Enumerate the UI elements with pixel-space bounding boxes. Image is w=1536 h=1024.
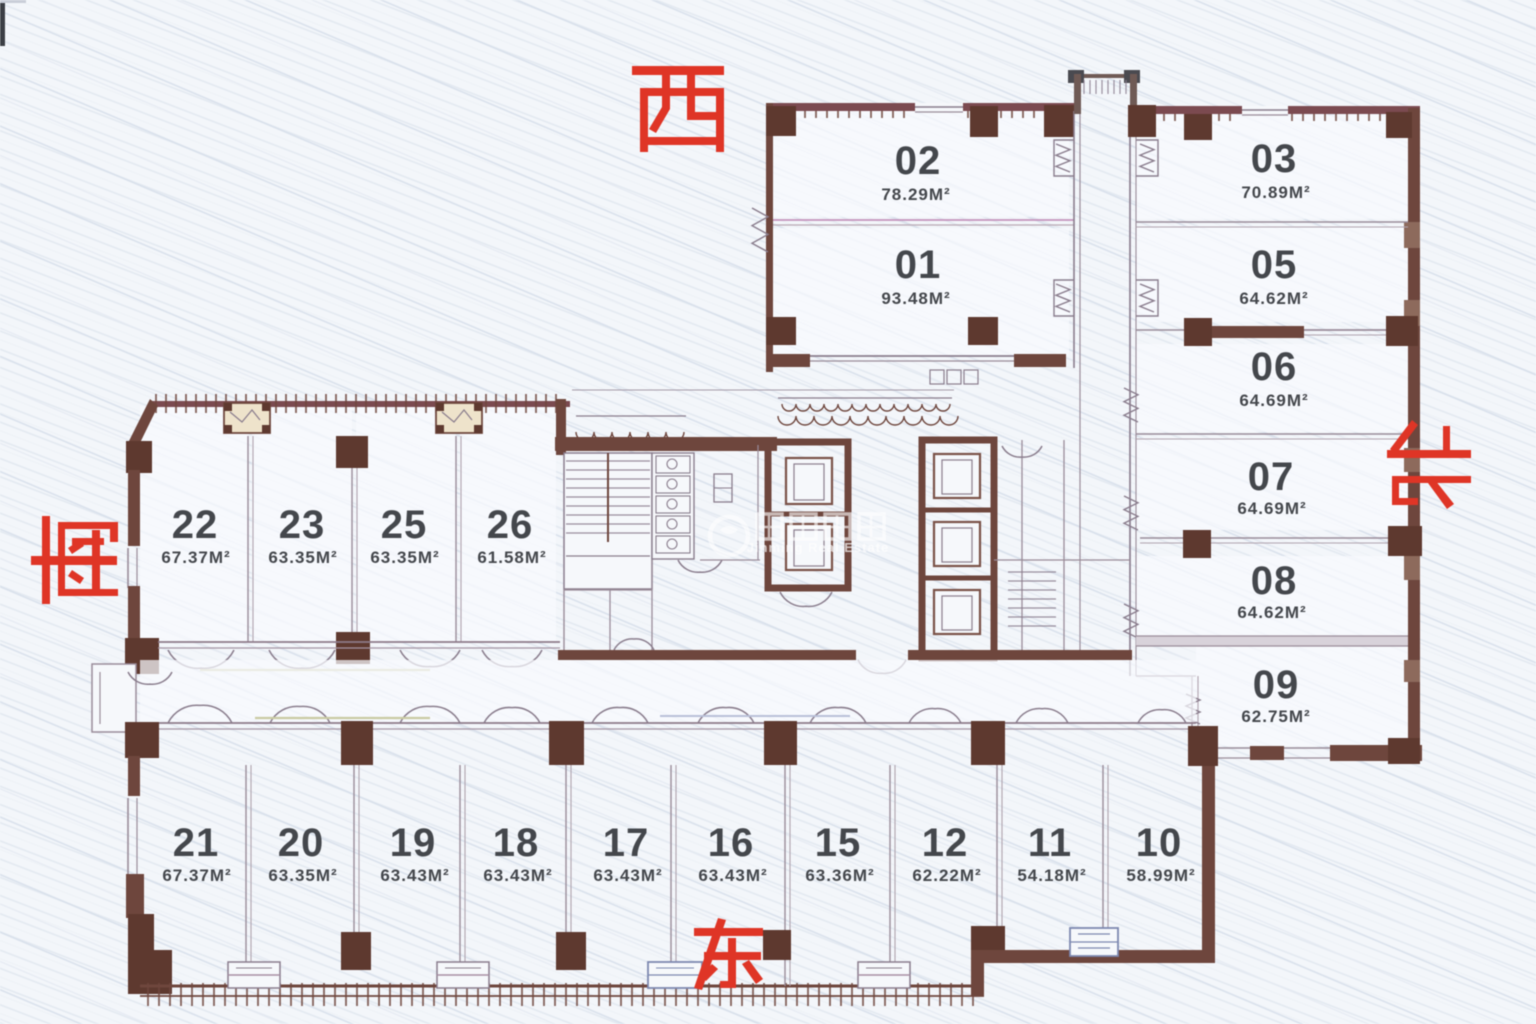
svg-text:93.48M²: 93.48M² <box>881 289 950 308</box>
svg-text:06: 06 <box>1251 345 1298 389</box>
svg-text:11: 11 <box>1028 821 1072 865</box>
svg-text:21: 21 <box>173 821 220 865</box>
svg-text:62.75M²: 62.75M² <box>1241 707 1310 726</box>
svg-text:64.69M²: 64.69M² <box>1239 391 1308 410</box>
svg-text:63.36M²: 63.36M² <box>805 866 874 885</box>
svg-text:67.37M²: 67.37M² <box>162 866 231 885</box>
svg-text:63.35M²: 63.35M² <box>268 866 337 885</box>
svg-text:78.29M²: 78.29M² <box>881 185 950 204</box>
svg-text:20: 20 <box>278 821 325 865</box>
svg-text:18: 18 <box>493 821 540 865</box>
svg-text:67.37M²: 67.37M² <box>161 548 230 567</box>
svg-text:63.35M²: 63.35M² <box>268 548 337 567</box>
svg-text:70.89M²: 70.89M² <box>1241 183 1310 202</box>
svg-text:07: 07 <box>1248 455 1295 499</box>
svg-text:61.58M²: 61.58M² <box>477 548 546 567</box>
svg-text:63.43M²: 63.43M² <box>483 866 552 885</box>
svg-text:54.18M²: 54.18M² <box>1017 866 1086 885</box>
svg-text:03: 03 <box>1251 137 1298 181</box>
svg-text:01: 01 <box>895 243 942 287</box>
svg-text:10: 10 <box>1136 821 1183 865</box>
svg-text:09: 09 <box>1253 663 1300 707</box>
svg-text:64.62M²: 64.62M² <box>1237 603 1306 622</box>
svg-text:19: 19 <box>390 821 437 865</box>
svg-text:17: 17 <box>603 821 650 865</box>
svg-text:63.43M²: 63.43M² <box>593 866 662 885</box>
svg-text:64.69M²: 64.69M² <box>1237 499 1306 518</box>
svg-text:15: 15 <box>815 821 862 865</box>
svg-text:63.43M²: 63.43M² <box>698 866 767 885</box>
svg-text:16: 16 <box>708 821 755 865</box>
svg-text:25: 25 <box>381 503 428 547</box>
svg-text:64.62M²: 64.62M² <box>1239 289 1308 308</box>
svg-text:02: 02 <box>895 139 942 183</box>
svg-text:63.43M²: 63.43M² <box>380 866 449 885</box>
svg-text:08: 08 <box>1251 559 1298 603</box>
svg-text:58.99M²: 58.99M² <box>1126 866 1195 885</box>
svg-text:62.22M²: 62.22M² <box>912 866 981 885</box>
svg-text:26: 26 <box>487 503 534 547</box>
svg-text:12: 12 <box>922 821 969 865</box>
svg-text:Jinming Real Estate: Jinming Real Estate <box>747 540 890 555</box>
svg-text:63.35M²: 63.35M² <box>370 548 439 567</box>
svg-text:22: 22 <box>172 503 219 547</box>
svg-text:05: 05 <box>1251 243 1298 287</box>
svg-text:23: 23 <box>279 503 326 547</box>
